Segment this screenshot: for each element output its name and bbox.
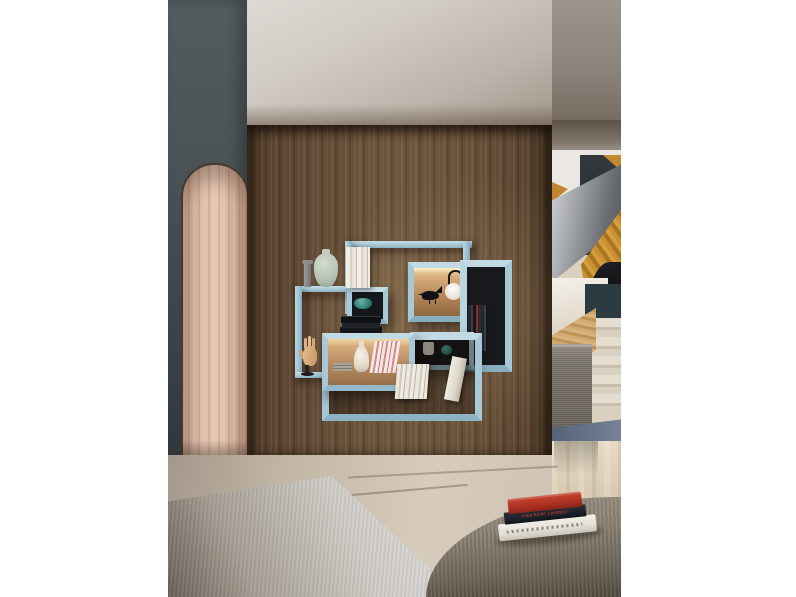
ottoman-book-stack: YVES SAINT LAURENT bbox=[495, 490, 604, 557]
teal-bowl bbox=[354, 298, 372, 309]
gray-candlestick bbox=[304, 264, 311, 287]
bird-figurine-legs bbox=[429, 300, 436, 304]
wooden-mannequin-hand bbox=[300, 338, 321, 378]
hallway-ceiling bbox=[552, 0, 621, 132]
hallway-soffit-shadow bbox=[552, 120, 621, 154]
fabric-bench bbox=[552, 344, 592, 436]
white-books bbox=[346, 247, 370, 288]
ceiling-wall-shadow bbox=[228, 104, 552, 127]
black-book bbox=[341, 316, 381, 323]
bird-figurine bbox=[422, 291, 439, 300]
interior-photo: YVES SAINT LAURENT bbox=[168, 0, 621, 597]
hand-palm bbox=[303, 346, 317, 366]
floor-reflection bbox=[554, 441, 598, 475]
black-book-stack bbox=[340, 316, 382, 333]
white-margin-left bbox=[0, 0, 168, 597]
white-bottle-vase bbox=[354, 346, 369, 372]
floor-grout-line bbox=[348, 466, 558, 479]
stacked-plates bbox=[333, 363, 352, 371]
white-margin-right bbox=[621, 0, 796, 597]
pink-spine-magazines bbox=[369, 341, 400, 373]
standing-books bbox=[395, 364, 429, 399]
hand-stand-base bbox=[301, 372, 314, 376]
screenshot-canvas: YVES SAINT LAURENT bbox=[0, 0, 796, 597]
arched-wood-niche bbox=[181, 163, 249, 465]
celadon-vase bbox=[314, 253, 338, 287]
